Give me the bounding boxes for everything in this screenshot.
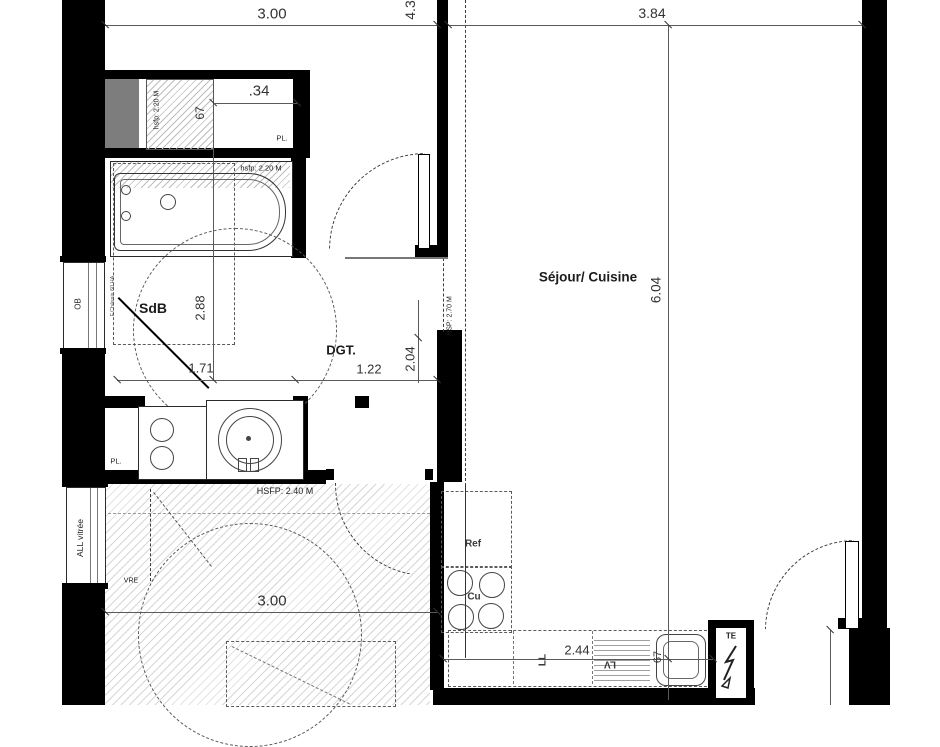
wall-right-top <box>862 0 887 628</box>
burner-3 <box>448 604 474 630</box>
wall-sejour-left-top <box>437 0 448 250</box>
dimension-line-bottom-room <box>105 612 437 613</box>
glazed-wall-cap-bottom <box>62 583 108 589</box>
dim-label-closet-width: .34 <box>249 83 270 100</box>
dimension-line-kitchen <box>443 659 713 660</box>
glazed-wall-glazing <box>97 488 98 583</box>
wall-closet-right <box>293 79 310 149</box>
height-label-sejour: HSP: 2.70 M <box>447 296 454 336</box>
dimension-line-sdb-dgt <box>117 380 437 381</box>
dim-label-dgt-width: 1.22 <box>356 362 381 377</box>
wall-dgt-bottom-stub <box>355 396 369 408</box>
washer-column-box <box>138 406 208 480</box>
dim-label-top-vertical: 4.3 <box>402 0 418 19</box>
cooktop-label: Cu <box>467 592 480 603</box>
wall-bottomzone-jamb-right <box>425 469 433 480</box>
washbasin-tap-2 <box>250 458 259 472</box>
washbasin-dot <box>246 436 251 441</box>
dimension-line-entry <box>830 630 831 705</box>
glazed-wall-divider <box>90 488 91 583</box>
floorplan-canvas: { "plan_title": "apartment-floor-plan", … <box>0 0 940 705</box>
wall-left-bottom <box>62 585 105 705</box>
dishwasher-label: LV <box>604 659 616 670</box>
wall-sejour-left-mid <box>437 330 462 482</box>
bottom-zone-dashed-line <box>108 513 430 514</box>
dim-label-closet-depth: 67 <box>193 106 207 119</box>
sejour-wall-face-line <box>345 257 448 259</box>
counter-divider-1 <box>513 631 514 684</box>
ob-window-divider <box>88 263 89 348</box>
shutter-label: VRE <box>124 578 138 585</box>
ob-window <box>63 262 105 350</box>
shutter-dashed-line <box>150 489 151 581</box>
closet-label-bottom: PL. <box>110 457 121 466</box>
washer-knob-2 <box>150 446 174 470</box>
dimension-line-top-left <box>105 25 437 26</box>
bottom-room-door-arc <box>335 483 426 574</box>
closet-label-top: PL. <box>276 134 287 143</box>
dimension-line-top-right <box>448 25 862 26</box>
wall-sdb-right <box>291 158 306 258</box>
dimension-line-dgt-depth <box>418 300 419 383</box>
wall-bottom <box>433 688 755 705</box>
glazed-wall-window <box>66 487 106 585</box>
dim-label-sdb-depth: 2.88 <box>193 295 208 320</box>
bottom-room-turning-circle <box>138 523 362 747</box>
dimension-line-sejour-depth <box>668 25 669 700</box>
dim-label-top-right: 3.84 <box>638 5 665 21</box>
burner-2 <box>479 572 505 598</box>
dimension-line-sdb-depth <box>213 100 214 380</box>
window-note-label: F.Châssis 60 HA <box>110 276 116 317</box>
burner-4 <box>478 603 504 629</box>
fridge-label: Ref <box>465 539 481 550</box>
height-label-bath: hsfp: 2.20 M <box>240 164 281 173</box>
bottom-room-furniture <box>226 641 396 707</box>
electrical-panel-label: TE <box>726 632 736 641</box>
fridge-outline <box>441 491 512 568</box>
room-label-dgt: DGT. <box>326 343 356 358</box>
wall-left-top <box>62 0 105 260</box>
dim-label-dgt-depth: 2.04 <box>403 346 418 371</box>
ob-window-cap-bottom <box>60 348 106 354</box>
technical-duct <box>105 79 139 148</box>
wall-right-bottom <box>849 628 890 705</box>
ceiling-break-line-short <box>443 258 444 332</box>
wall-left-mid <box>62 352 105 486</box>
dim-label-kitchen-length: 2.44 <box>564 643 589 658</box>
dim-label-sink-width: 67 <box>652 651 664 663</box>
room-label-sejour: Séjour/ Cuisine <box>539 270 637 285</box>
washer-label: LL <box>538 654 549 666</box>
dim-label-top-left: 3.00 <box>257 6 286 23</box>
ob-window-label: OB <box>74 298 83 310</box>
wall-bottomzone-jamb-left <box>326 469 334 480</box>
ceiling-break-line <box>465 0 466 486</box>
ob-window-glazing <box>96 263 97 348</box>
height-label-closet: hsfp: 2.20 M <box>154 91 161 130</box>
wall-closet-top <box>105 70 310 79</box>
glazed-wall-label: ALL vitrée <box>75 519 85 557</box>
counter-divider-2 <box>592 631 593 684</box>
dim-label-sdb-width: 1.71 <box>188 361 213 376</box>
dgt-sejour-door-arc <box>329 153 425 249</box>
entry-door-arc <box>765 540 854 629</box>
dim-label-sejour-depth: 6.04 <box>649 277 664 303</box>
washer-knob-1 <box>150 418 174 442</box>
washbasin-tap-1 <box>238 458 247 472</box>
height-label-bottom-zone: HSFP: 2.40 M <box>257 486 314 496</box>
dimension-line-closet <box>215 103 297 104</box>
dim-label-bottom-room: 3.00 <box>257 593 286 610</box>
room-label-sdb: SdB <box>139 300 167 316</box>
